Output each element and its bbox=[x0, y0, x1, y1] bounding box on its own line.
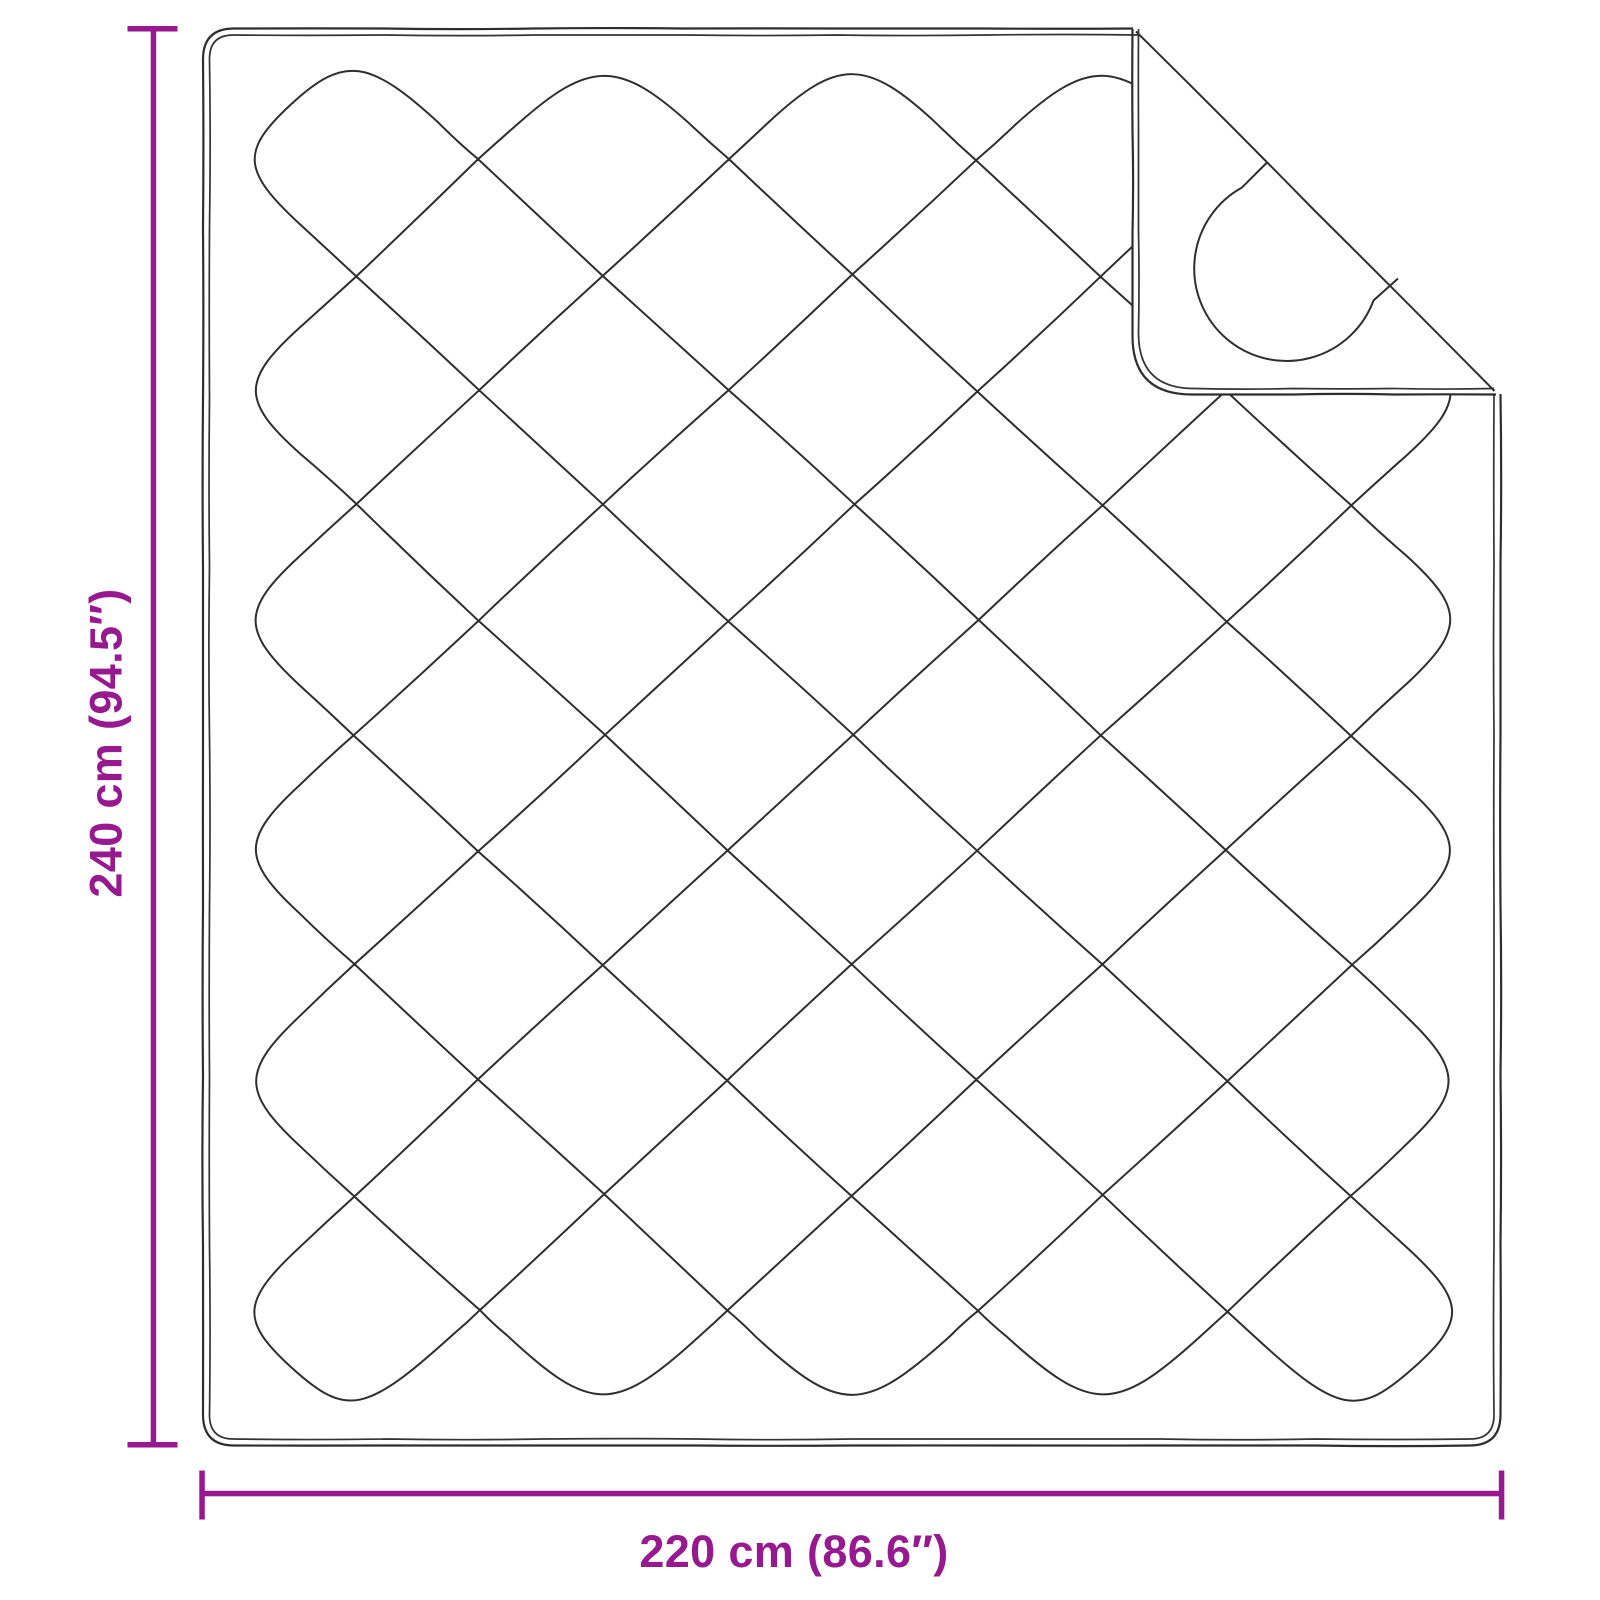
svg-text:240 cm (94.5″): 240 cm (94.5″) bbox=[81, 588, 132, 897]
svg-text:220 cm (86.6″): 220 cm (86.6″) bbox=[639, 1526, 948, 1577]
